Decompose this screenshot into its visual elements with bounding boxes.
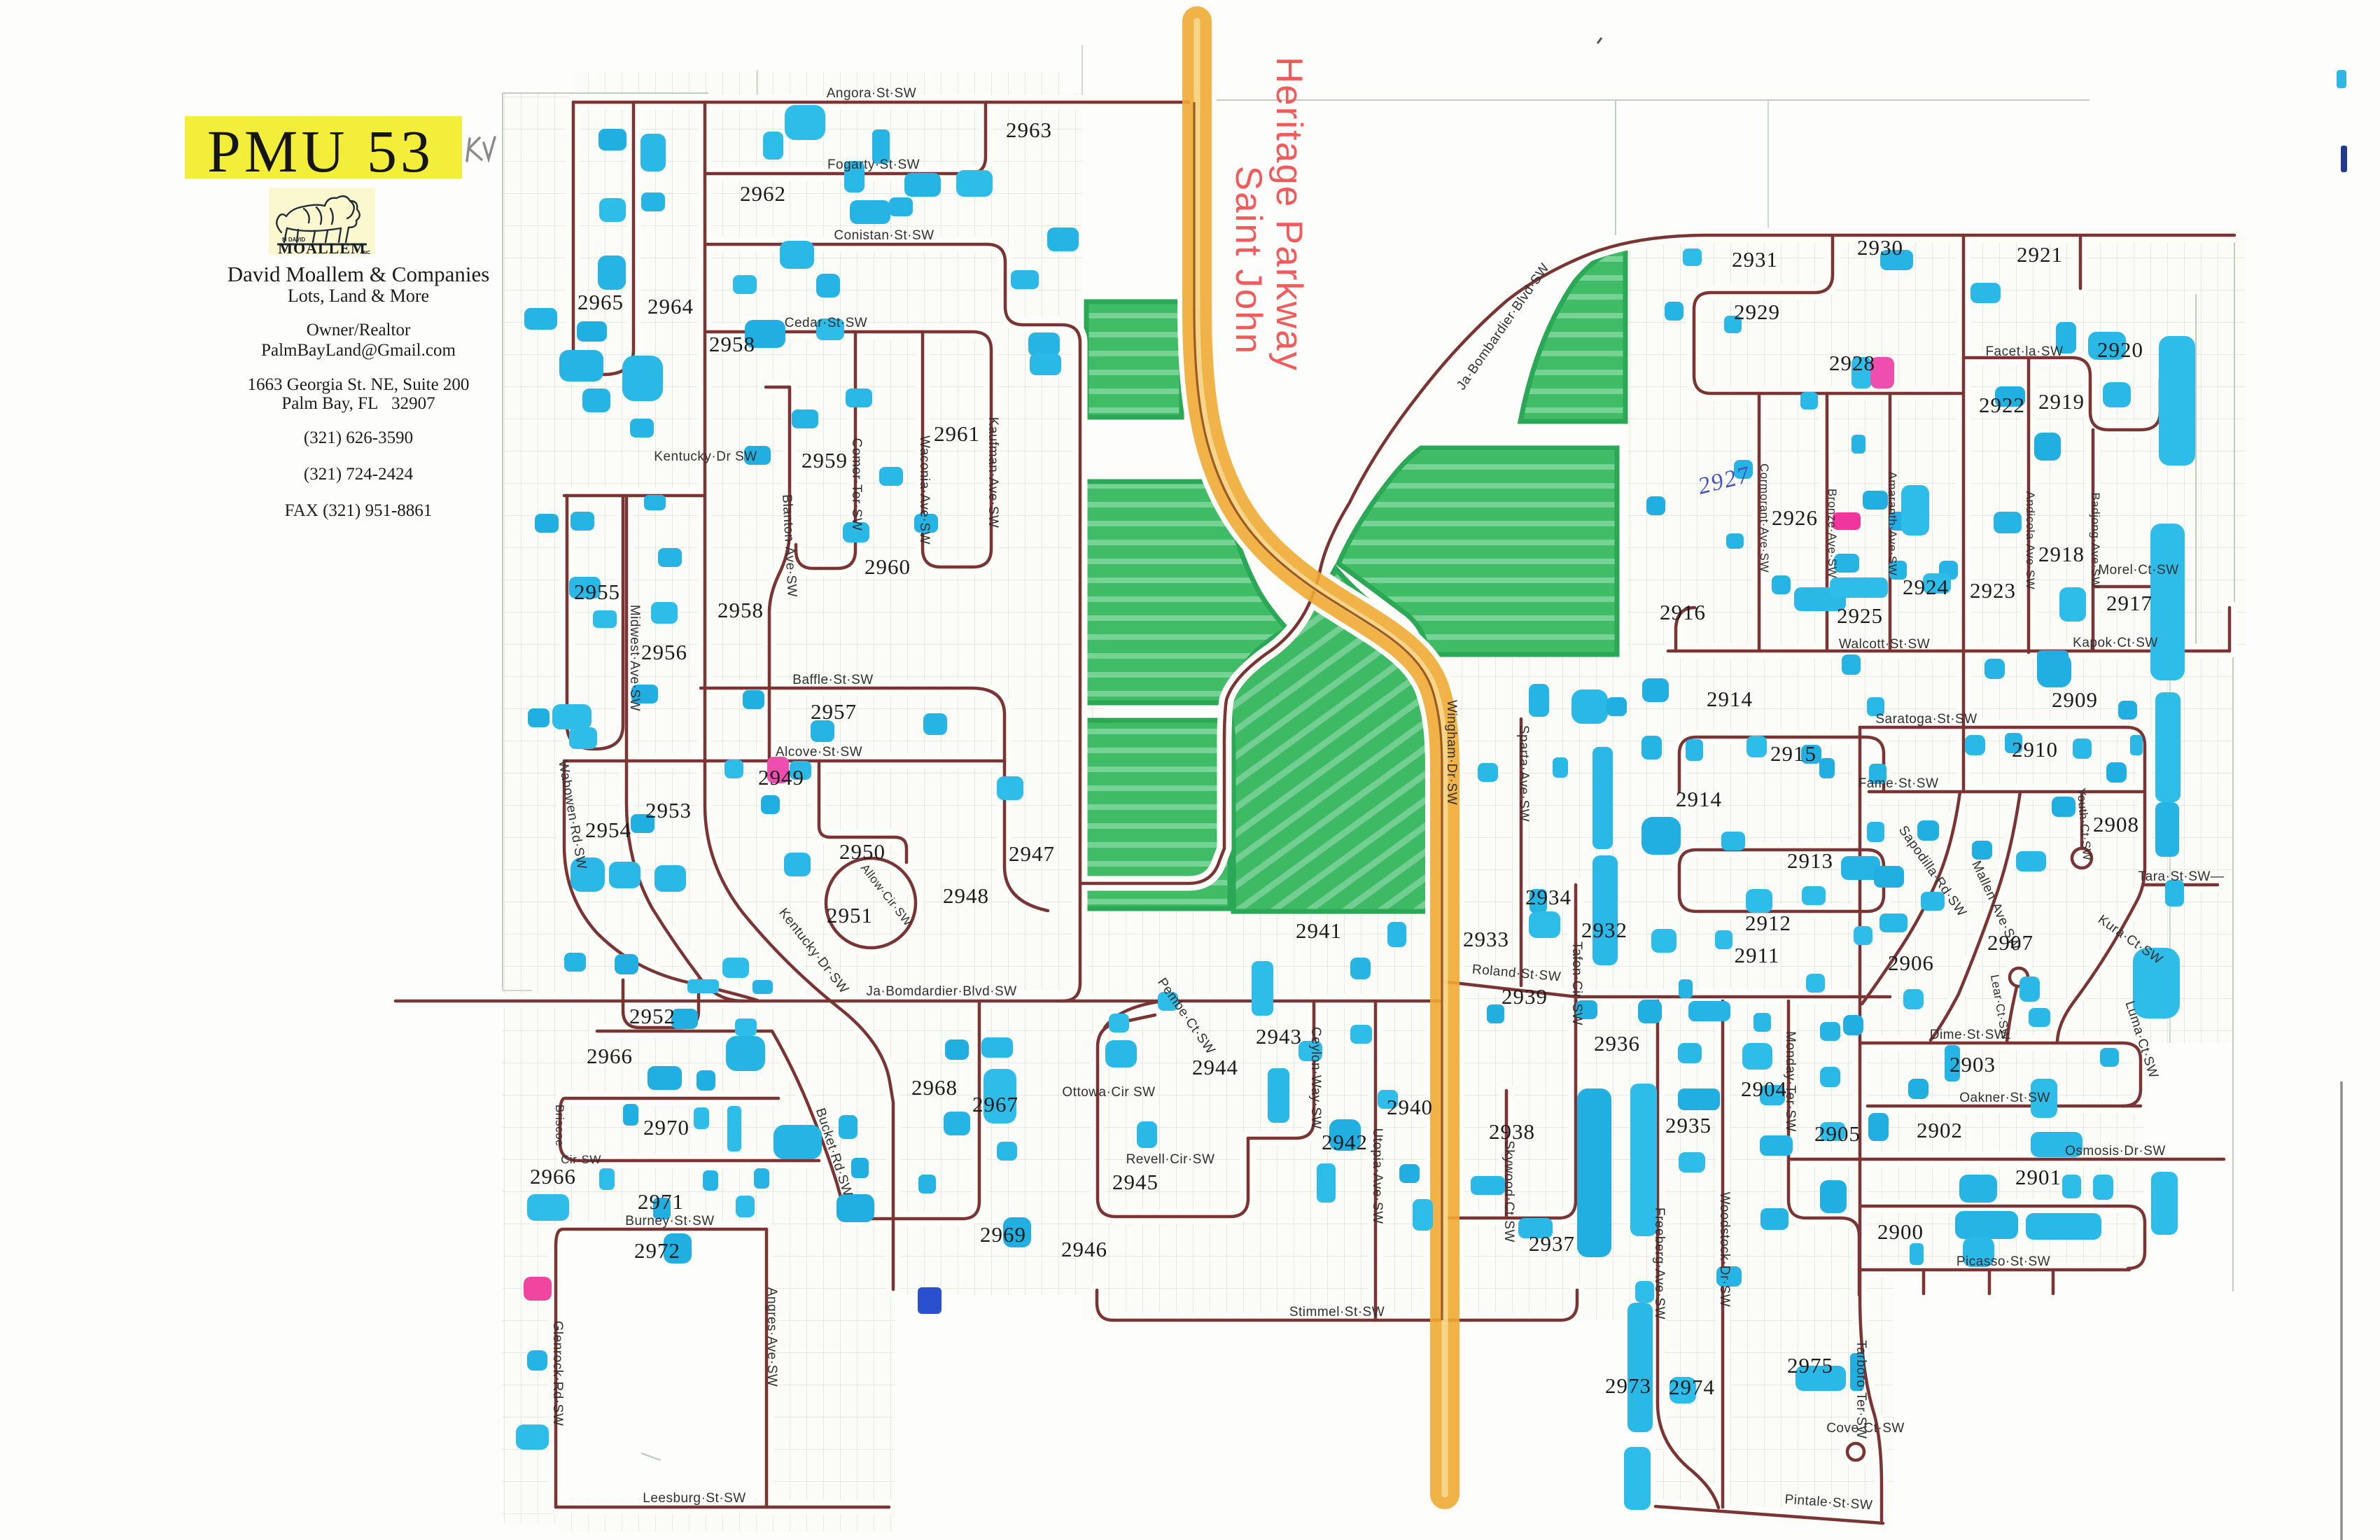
svg-text:Kentucky·Dr SW: Kentucky·Dr SW (654, 449, 757, 464)
svg-text:Saint John: Saint John (1228, 166, 1269, 355)
svg-text:2958: 2958 (717, 598, 764, 622)
svg-text:2975: 2975 (1787, 1353, 1833, 1378)
svg-text:2956: 2956 (641, 640, 687, 664)
svg-text:2934: 2934 (1525, 885, 1571, 909)
svg-text:2970: 2970 (643, 1115, 689, 1140)
svg-text:Skywood·Ct·SW: Skywood·Ct·SW (1501, 1140, 1516, 1242)
svg-text:Facet·la·SW: Facet·la·SW (1985, 344, 2063, 359)
svg-text:2953: 2953 (645, 798, 692, 822)
svg-text:Morel·Ct·SW: Morel·Ct·SW (2098, 563, 2178, 577)
svg-text:2940: 2940 (1387, 1095, 1433, 1119)
svg-text:2926: 2926 (1772, 505, 1818, 530)
svg-text:2962: 2962 (740, 181, 786, 206)
svg-text:Fame·St·SW: Fame·St·SW (1858, 776, 1939, 791)
svg-text:2924: 2924 (1903, 575, 1949, 599)
svg-text:Cove·Ct·SW: Cove·Ct·SW (1826, 1421, 1905, 1436)
svg-text:2965: 2965 (577, 290, 624, 314)
svg-text:Ceylon·Way·SW: Ceylon·Way·SW (1308, 1027, 1323, 1129)
svg-text:2964: 2964 (647, 294, 694, 318)
svg-text:2961: 2961 (934, 421, 980, 446)
svg-text:2928: 2928 (1829, 351, 1875, 375)
svg-text:Kapok·Ct·SW: Kapok·Ct·SW (2073, 636, 2158, 650)
svg-text:Midwest·Ave·SW: Midwest·Ave·SW (627, 605, 642, 711)
svg-text:Fogarty·St·SW: Fogarty·St·SW (827, 157, 920, 172)
svg-text:Briscoe: Briscoe (553, 1105, 566, 1147)
svg-text:2904: 2904 (1741, 1077, 1787, 1101)
svg-text:Angres·Ave·SW: Angres·Ave·SW (764, 1287, 779, 1387)
svg-text:2900: 2900 (1877, 1219, 1924, 1244)
svg-text:Bronze·Ave·SW: Bronze·Ave·SW (1826, 489, 1839, 578)
svg-text:2968: 2968 (911, 1075, 958, 1100)
svg-text:Stimmel·St·SW: Stimmel·St·SW (1289, 1305, 1385, 1319)
svg-text:Tara·St·SW—: Tara·St·SW— (2138, 869, 2225, 884)
svg-text:2911: 2911 (1735, 943, 1780, 967)
svg-text:Picasso·St·SW: Picasso·St·SW (1956, 1254, 2050, 1269)
svg-text:2912: 2912 (1745, 911, 1791, 935)
svg-text:2909: 2909 (2052, 687, 2098, 712)
svg-text:2966: 2966 (530, 1164, 576, 1189)
svg-text:Baffle·St·SW: Baffle·St·SW (792, 673, 873, 687)
svg-text:2947: 2947 (1009, 841, 1055, 866)
svg-text:Comer·Ter·SW: Comer·Ter·SW (849, 438, 864, 531)
svg-text:INC: INC (362, 251, 370, 255)
svg-text:Ottowa·Cir SW: Ottowa·Cir SW (1062, 1085, 1155, 1100)
svg-text:2938: 2938 (1489, 1119, 1535, 1144)
svg-text:2936: 2936 (1594, 1031, 1640, 1056)
svg-text:Cormorant·Ave·SW: Cormorant·Ave·SW (1758, 463, 1771, 573)
svg-text:2929: 2929 (1734, 300, 1780, 324)
svg-text:Andicola·Ave·SW: Andicola·Ave·SW (2024, 491, 2037, 589)
svg-text:2945: 2945 (1112, 1170, 1158, 1194)
svg-text:Kaufman·Ave·SW: Kaufman·Ave·SW (986, 417, 1000, 528)
svg-text:Badjong·Ave·SW: Badjong·Ave·SW (2089, 492, 2102, 588)
svg-text:2916: 2916 (1660, 600, 1706, 624)
svg-text:2925: 2925 (1837, 603, 1883, 628)
svg-text:Burney·St·SW: Burney·St·SW (625, 1214, 714, 1228)
svg-text:Woodstock·Dr·SW: Woodstock·Dr·SW (1717, 1192, 1732, 1307)
svg-text:2921: 2921 (2017, 242, 2063, 267)
svg-text:2952: 2952 (629, 1004, 675, 1028)
svg-text:Angora·St·SW: Angora·St·SW (827, 86, 916, 101)
svg-text:2913: 2913 (1787, 848, 1833, 873)
svg-text:Cedar·St·SW: Cedar·St·SW (785, 316, 867, 330)
svg-text:Ja·Bomdardier·Blvd·SW: Ja·Bomdardier·Blvd·SW (866, 984, 1016, 999)
svg-text:2935: 2935 (1665, 1113, 1711, 1137)
svg-text:Heritage Parkway: Heritage Parkway (1268, 57, 1310, 372)
svg-text:2971: 2971 (638, 1189, 684, 1214)
svg-text:2967: 2967 (972, 1092, 1018, 1116)
svg-text:2902: 2902 (1917, 1118, 1963, 1142)
svg-text:2903: 2903 (1949, 1052, 1996, 1077)
svg-text:2933: 2933 (1463, 927, 1509, 951)
svg-text:2963: 2963 (1006, 118, 1052, 142)
svg-text:Saratoga·St·SW: Saratoga·St·SW (1875, 712, 1977, 727)
svg-text:2944: 2944 (1192, 1055, 1238, 1079)
svg-text:2931: 2931 (1732, 247, 1778, 272)
svg-text:2918: 2918 (2038, 542, 2085, 566)
svg-text:2910: 2910 (2012, 737, 2058, 762)
svg-text:2942: 2942 (1322, 1130, 1368, 1154)
svg-text:Leesburg·St·SW: Leesburg·St·SW (643, 1491, 745, 1506)
svg-text:2915: 2915 (1770, 741, 1816, 766)
svg-text:2937: 2937 (1529, 1231, 1575, 1256)
svg-text:2939: 2939 (1501, 984, 1548, 1009)
svg-text:2958: 2958 (709, 332, 755, 356)
svg-text:2973: 2973 (1605, 1373, 1651, 1398)
svg-text:Osmosis·Dr·SW: Osmosis·Dr·SW (2065, 1144, 2166, 1158)
svg-text:2920: 2920 (2097, 337, 2143, 362)
svg-text:2930: 2930 (1857, 235, 1903, 260)
svg-text:2949: 2949 (758, 765, 804, 790)
svg-text:2957: 2957 (811, 699, 857, 724)
svg-text:Amaranth·Ave·SW: Amaranth·Ave·SW (1886, 472, 1899, 576)
svg-text:MOALLEM: MOALLEM (278, 239, 366, 255)
svg-text:2919: 2919 (2038, 389, 2085, 414)
svg-text:2914: 2914 (1707, 687, 1753, 711)
svg-text:Waconia·Ave·SW: Waconia·Ave·SW (917, 435, 932, 545)
svg-text:2923: 2923 (1970, 578, 2016, 603)
svg-text:Oakner·St·SW: Oakner·St·SW (1959, 1091, 2050, 1105)
svg-text:Freeberg·Ave·SW: Freeberg·Ave·SW (1652, 1207, 1667, 1319)
svg-text:2951: 2951 (827, 903, 873, 927)
svg-text:2950: 2950 (839, 839, 885, 864)
svg-text:Utopia·Ave·SW: Utopia·Ave·SW (1370, 1128, 1385, 1224)
svg-text:2908: 2908 (2093, 812, 2139, 836)
svg-text:2954: 2954 (585, 818, 631, 842)
svg-text:2960: 2960 (864, 554, 911, 579)
svg-text:2922: 2922 (1979, 393, 2025, 417)
svg-text:2974: 2974 (1669, 1375, 1715, 1399)
svg-text:2906: 2906 (1888, 951, 1934, 975)
svg-text:Alcove·St·SW: Alcove·St·SW (776, 745, 862, 759)
svg-text:2959: 2959 (801, 448, 848, 472)
svg-text:2972: 2972 (634, 1238, 680, 1263)
svg-text:Conistan·St·SW: Conistan·St·SW (834, 228, 934, 243)
svg-text:Tafon·Cir·SW: Tafon·Cir·SW (1569, 941, 1584, 1025)
svg-text:Walcott·St·SW: Walcott·St·SW (1839, 637, 1930, 652)
svg-text:2955: 2955 (574, 580, 620, 604)
svg-text:2905: 2905 (1814, 1121, 1861, 1146)
svg-text:Glenrock·Rd·SW: Glenrock·Rd·SW (550, 1321, 565, 1427)
svg-text:2946: 2946 (1061, 1237, 1107, 1261)
svg-text:2901: 2901 (2015, 1165, 2061, 1189)
svg-text:2943: 2943 (1256, 1024, 1302, 1049)
svg-text:Revell·Cir·SW: Revell·Cir·SW (1126, 1152, 1215, 1167)
svg-text:2932: 2932 (1581, 918, 1627, 942)
svg-text:2917: 2917 (2106, 591, 2152, 615)
svg-text:2941: 2941 (1296, 918, 1342, 943)
svg-text:Wingham·Dr·SW: Wingham·Dr·SW (1444, 700, 1459, 805)
svg-text:2969: 2969 (980, 1222, 1026, 1247)
svg-text:Dime·St·SW: Dime·St·SW (1930, 1028, 2008, 1042)
svg-text:2907: 2907 (1987, 930, 2033, 955)
svg-text:2948: 2948 (943, 883, 989, 908)
svg-text:2914: 2914 (1676, 787, 1722, 811)
svg-text:2966: 2966 (587, 1044, 633, 1068)
svg-text:Sparta·Ave·SW: Sparta·Ave·SW (1516, 725, 1531, 822)
